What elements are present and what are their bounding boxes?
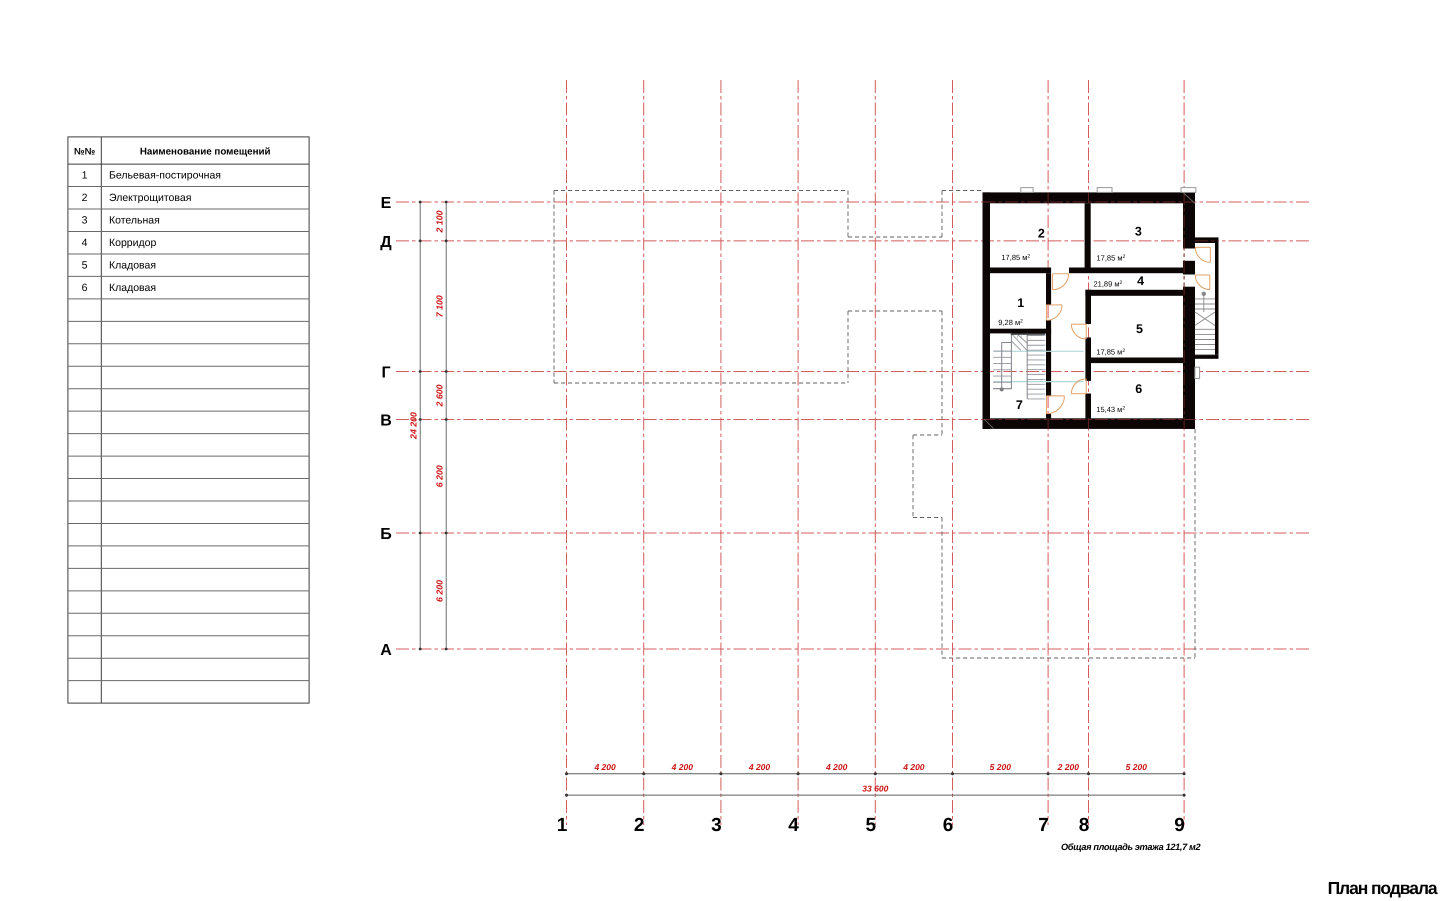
svg-text:Кладовая: Кладовая: [109, 260, 156, 272]
svg-text:6: 6: [1135, 382, 1142, 396]
svg-text:17,85 м2: 17,85 м2: [1001, 253, 1030, 262]
svg-text:4 200: 4 200: [825, 762, 848, 772]
svg-text:Д: Д: [380, 234, 392, 251]
svg-text:В: В: [380, 413, 392, 430]
svg-text:Е: Е: [381, 195, 392, 212]
svg-text:17,85 м2: 17,85 м2: [1096, 348, 1125, 357]
svg-text:Б: Б: [380, 526, 392, 543]
svg-text:9,28 м2: 9,28 м2: [998, 318, 1023, 327]
svg-text:9: 9: [1174, 815, 1185, 836]
svg-text:2: 2: [634, 815, 645, 836]
svg-text:5: 5: [82, 260, 88, 272]
svg-text:План подвала: План подвала: [1328, 878, 1438, 898]
svg-text:Наименование помещений: Наименование помещений: [140, 147, 271, 158]
svg-text:3: 3: [711, 815, 722, 836]
svg-text:2 100: 2 100: [435, 210, 445, 233]
svg-text:5: 5: [866, 815, 877, 836]
svg-text:3: 3: [1135, 225, 1142, 239]
svg-text:Корридор: Корридор: [109, 237, 156, 249]
svg-text:8: 8: [1079, 815, 1090, 836]
svg-text:Кладовая: Кладовая: [109, 282, 156, 294]
svg-text:6 200: 6 200: [435, 465, 445, 487]
svg-text:2 200: 2 200: [1057, 762, 1080, 772]
svg-text:17,85 м2: 17,85 м2: [1097, 254, 1126, 263]
svg-text:2: 2: [1038, 227, 1045, 241]
svg-text:4 200: 4 200: [593, 762, 616, 772]
svg-text:6: 6: [943, 815, 954, 836]
svg-text:15,43 м2: 15,43 м2: [1096, 405, 1125, 414]
svg-text:Электрощитовая: Электрощитовая: [109, 192, 191, 204]
svg-text:5 200: 5 200: [1126, 762, 1148, 772]
svg-text:7: 7: [1016, 398, 1023, 412]
svg-text:6 200: 6 200: [435, 580, 445, 602]
svg-text:№№: №№: [74, 147, 96, 158]
svg-text:1: 1: [557, 815, 568, 836]
svg-text:24 200: 24 200: [409, 412, 419, 440]
svg-text:7 100: 7 100: [435, 295, 445, 317]
svg-text:5 200: 5 200: [990, 762, 1012, 772]
svg-text:3: 3: [82, 215, 88, 227]
svg-text:21,89 м2: 21,89 м2: [1094, 279, 1123, 288]
svg-text:4 200: 4 200: [748, 762, 771, 772]
svg-text:5: 5: [1136, 322, 1143, 336]
svg-text:4: 4: [1137, 274, 1144, 288]
svg-text:Г: Г: [381, 365, 390, 382]
svg-text:Котельная: Котельная: [109, 215, 160, 227]
svg-text:33 600: 33 600: [862, 784, 888, 794]
svg-text:А: А: [380, 642, 392, 659]
svg-text:1: 1: [1017, 296, 1024, 310]
svg-text:Общая площадь этажа 121,7 м2: Общая площадь этажа 121,7 м2: [1061, 842, 1201, 852]
svg-text:2: 2: [82, 192, 88, 204]
svg-text:4 200: 4 200: [671, 762, 694, 772]
svg-text:4: 4: [82, 237, 88, 249]
svg-text:2 600: 2 600: [435, 384, 445, 407]
svg-text:7: 7: [1038, 815, 1049, 836]
svg-text:Бельевая-постирочная: Бельевая-постирочная: [109, 170, 221, 182]
svg-text:4 200: 4 200: [902, 762, 925, 772]
svg-text:1: 1: [82, 170, 88, 182]
svg-text:4: 4: [788, 815, 799, 836]
svg-text:6: 6: [82, 282, 88, 294]
